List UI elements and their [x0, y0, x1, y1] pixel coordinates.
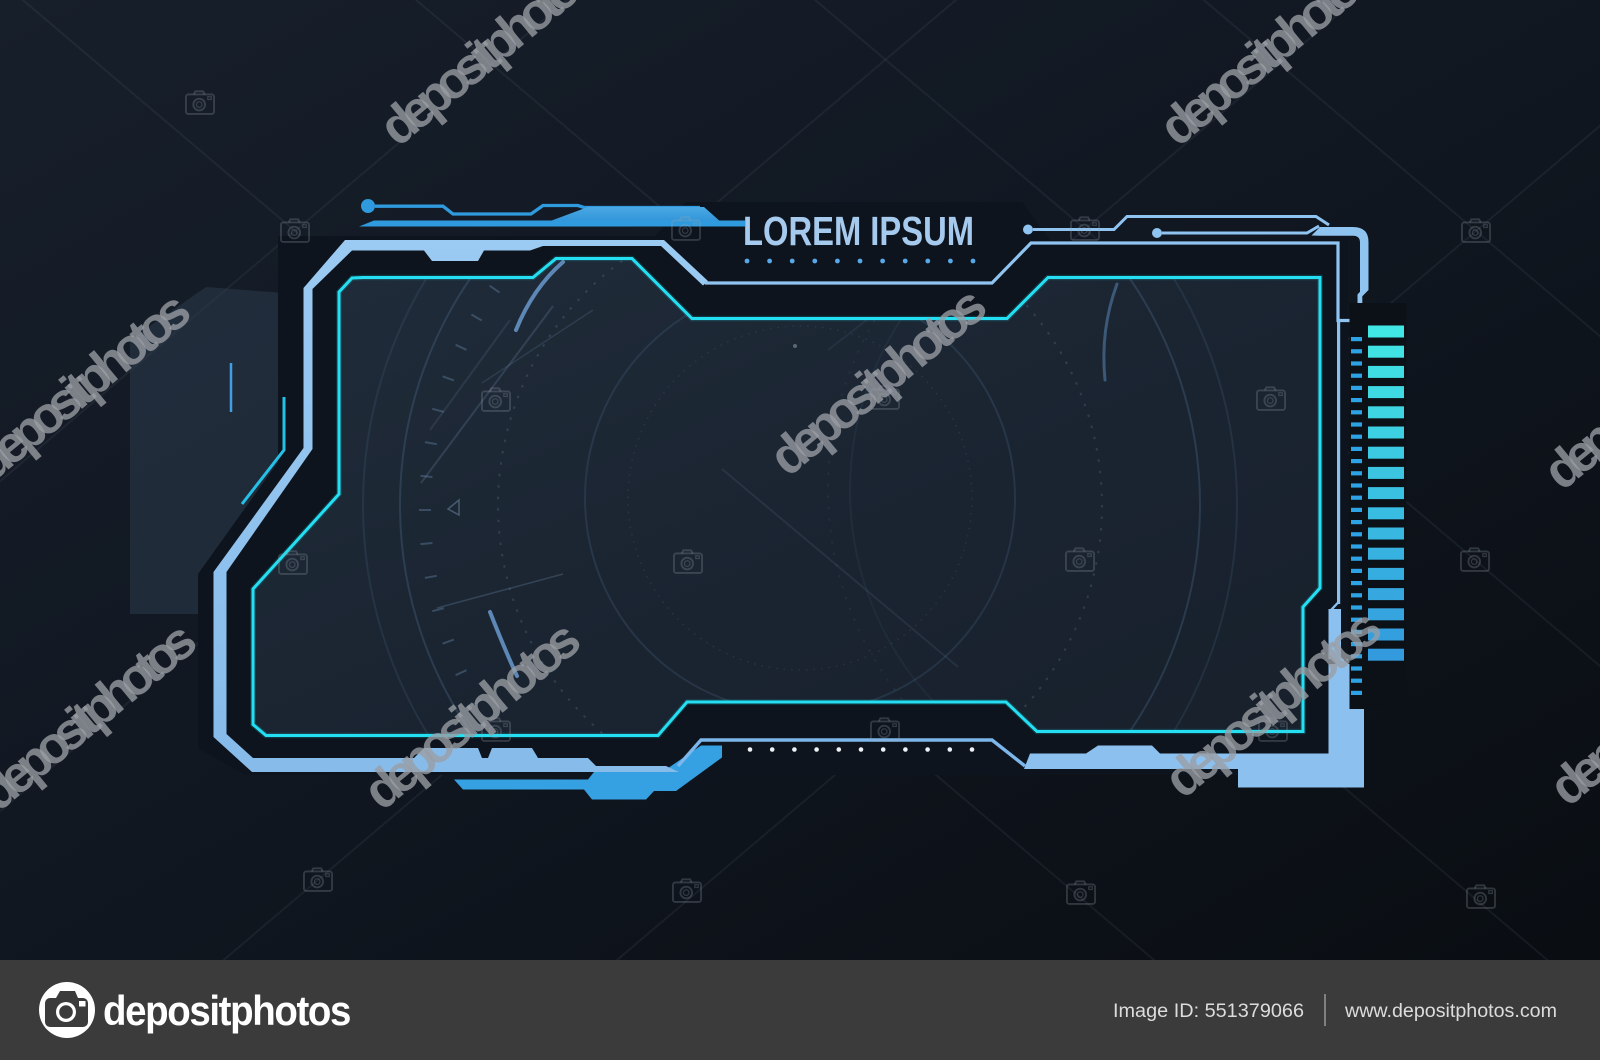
svg-text:www.depositphotos.com: www.depositphotos.com — [1344, 1001, 1557, 1022]
svg-text:Image ID: 551379066: Image ID: 551379066 — [1113, 1001, 1304, 1022]
svg-text:depositphotos: depositphotos — [103, 987, 350, 1034]
svg-text:LOREM IPSUM: LOREM IPSUM — [743, 208, 974, 254]
